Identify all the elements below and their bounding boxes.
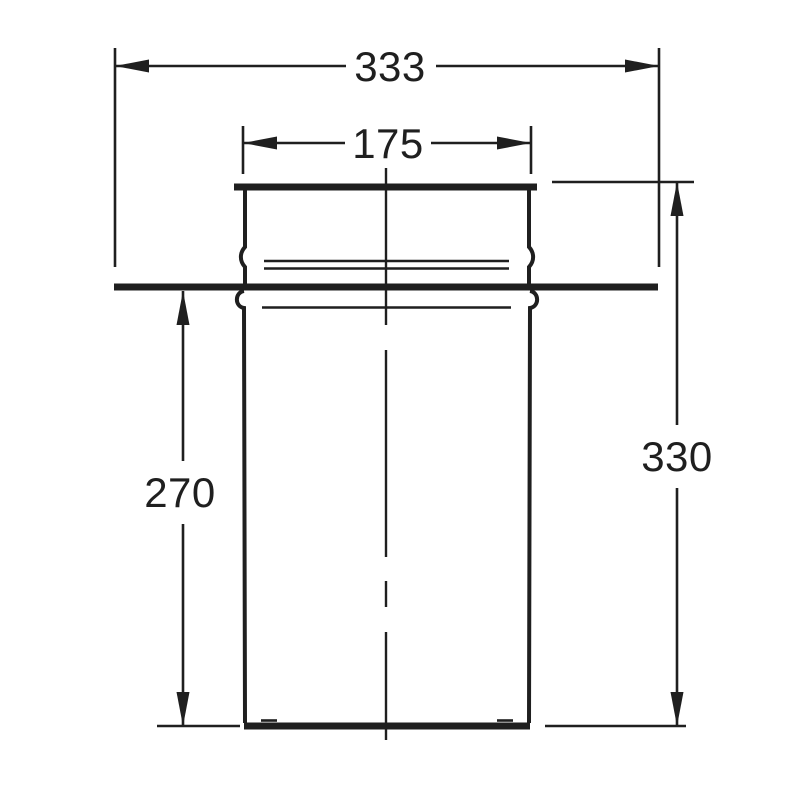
dimension-socket-diameter: 175: [243, 120, 531, 174]
dimension-pipe-below-flange: 270: [144, 291, 240, 726]
socket-diameter-arrow-left: [243, 137, 277, 150]
flange-width-arrow-right: [625, 60, 659, 73]
dimension-overall-height: 330: [545, 182, 713, 726]
flange-width-arrow-left: [115, 60, 149, 73]
socket-diameter-arrow-right: [497, 137, 531, 150]
pipe-below-flange-label: 270: [144, 469, 216, 516]
technical-drawing: 333 175 270 330: [0, 0, 800, 800]
overall-height-label: 330: [641, 433, 713, 480]
overall-height-arrow-down: [671, 692, 684, 726]
pipe-right-wall: [529, 291, 537, 723]
pipe-below-flange-arrow-up: [177, 291, 190, 325]
flange-width-label: 333: [354, 43, 426, 90]
collar-left-wall: [241, 190, 245, 284]
collar-right-wall: [529, 190, 533, 284]
pipe-below-flange-arrow-down: [177, 692, 190, 726]
socket-diameter-label: 175: [352, 120, 424, 167]
drawing-svg: 333 175 270 330: [0, 0, 800, 800]
pipe-left-wall: [237, 291, 245, 723]
overall-height-arrow-up: [671, 182, 684, 216]
